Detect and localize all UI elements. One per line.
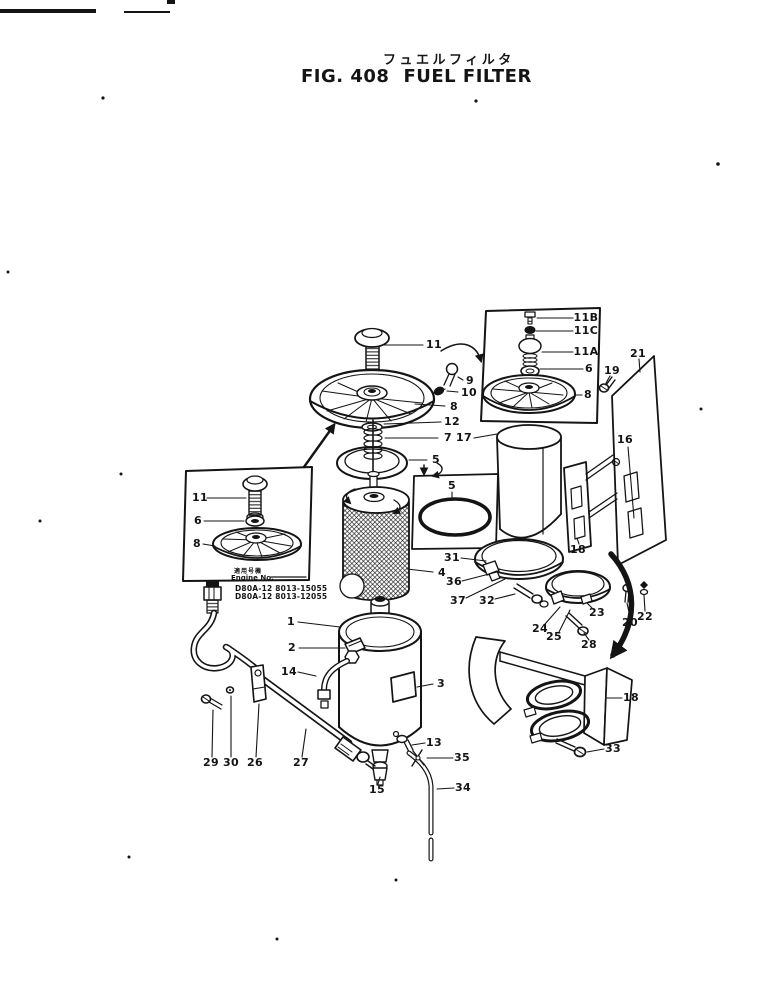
- callout-leader-29: [212, 710, 213, 757]
- bracket-26-part: [251, 665, 266, 702]
- callout-4: 4: [438, 566, 446, 579]
- callout-18: 18: [570, 543, 586, 556]
- callout-19: 19: [604, 364, 620, 377]
- bolt-19-part: [600, 377, 616, 392]
- callout-11B: 11B: [574, 311, 599, 324]
- callout-leader-27: [302, 729, 306, 757]
- callout-leader-9: [458, 377, 463, 380]
- callout-8: 8: [450, 400, 458, 413]
- callout-14: 14: [281, 665, 297, 678]
- cover-dome-inset2-part: [213, 528, 301, 560]
- callout-21: 21: [630, 347, 646, 360]
- callout-20: 20: [622, 616, 638, 629]
- callout-leader-13: [412, 743, 425, 745]
- callout-15: 15: [369, 783, 385, 796]
- callout-35: 35: [454, 751, 470, 764]
- callout-leader-1: [298, 622, 340, 627]
- callout-leader-26: [256, 704, 259, 757]
- callout-36: 36: [446, 575, 462, 588]
- callout-leader-17: [474, 434, 497, 438]
- washer-30-part: [227, 687, 234, 693]
- callout-29: 29: [203, 756, 219, 769]
- cover-cylinder-part: [497, 425, 561, 538]
- lower-bracket-assembly-part: [469, 637, 632, 746]
- drain-boss-part: [372, 750, 388, 762]
- callout-17: 17: [456, 431, 472, 444]
- washer-22-part: [640, 581, 648, 595]
- callout-27: 27: [293, 756, 309, 769]
- callout-leader-10: [447, 391, 458, 392]
- callout-8: 8: [193, 537, 201, 550]
- name-plate-3-part: [391, 672, 416, 702]
- engine-number-inset-box: 適用号機 Engine No.: [183, 467, 312, 582]
- oring-detail-box: [412, 465, 498, 549]
- callout-7: 7: [444, 431, 452, 444]
- callout-18: 18: [623, 691, 639, 704]
- callout-6: 6: [585, 362, 593, 375]
- callout-1: 1: [287, 615, 295, 628]
- callout-leader-4: [407, 569, 433, 572]
- callout-16: 16: [617, 433, 633, 446]
- callout-5: 5: [448, 479, 456, 492]
- nut-6-inset2-part: [246, 516, 264, 526]
- callout-leader-14: [298, 672, 316, 676]
- callout-leader-34: [437, 788, 454, 789]
- callout-34: 34: [455, 781, 471, 794]
- callout-12: 12: [444, 415, 460, 428]
- callout-3: 3: [437, 677, 445, 690]
- callout-33: 33: [605, 742, 621, 755]
- callout-5: 5: [432, 453, 440, 466]
- callout-10: 10: [461, 386, 477, 399]
- callout-leader-22: [644, 595, 645, 611]
- callout-26: 26: [247, 756, 263, 769]
- callout-11: 11: [426, 338, 442, 351]
- oring-5-part: [420, 499, 490, 535]
- drain-tube-34-part: [409, 753, 431, 859]
- callout-13: 13: [426, 736, 442, 749]
- washer-11c-part: [525, 327, 535, 334]
- bolt-11b-part: [525, 312, 535, 324]
- pipe-end-fitting-part: [335, 737, 375, 769]
- clamp-band-24-part: [546, 571, 610, 604]
- callout-23: 23: [589, 606, 605, 619]
- handle-subassembly-11a-part: [519, 335, 541, 366]
- engine-no-label: Engine No.: [231, 574, 274, 582]
- cover-dome-part: [310, 370, 434, 428]
- callout-leader-32: [495, 594, 515, 599]
- mounting-plate-16-part: [612, 356, 666, 565]
- callout-37: 37: [450, 594, 466, 607]
- callout-25: 25: [546, 630, 562, 643]
- bolt-29-part: [202, 695, 223, 709]
- callout-22: 22: [637, 610, 653, 623]
- callout-leader-25: [559, 610, 570, 632]
- callout-leader-33: [587, 749, 604, 752]
- callout-8: 8: [584, 388, 592, 401]
- callout-11A: 11A: [573, 345, 598, 358]
- exploded-parts-diagram: 適用号機 Engine No. D80A-12 8013-15055 D80A-…: [0, 0, 778, 991]
- serial-range-line-2: D80A-12 8013-12055: [235, 592, 327, 601]
- filter-element-part: [340, 472, 409, 601]
- callout-2: 2: [288, 641, 296, 654]
- callout-32: 32: [479, 594, 495, 607]
- callout-30: 30: [223, 756, 239, 769]
- callout-6: 6: [194, 514, 202, 527]
- callout-leader-3: [417, 684, 433, 687]
- bolt-32-part: [514, 584, 548, 607]
- callout-11: 11: [192, 491, 208, 504]
- bracket-strip-18-part: [564, 455, 617, 552]
- bolt-28-part: [566, 613, 588, 635]
- callout-28: 28: [581, 638, 597, 651]
- cover-dome-inset-part: [483, 375, 575, 413]
- knob-11-inset-part: [243, 476, 267, 521]
- callout-31: 31: [444, 551, 460, 564]
- callout-11C: 11C: [574, 324, 599, 337]
